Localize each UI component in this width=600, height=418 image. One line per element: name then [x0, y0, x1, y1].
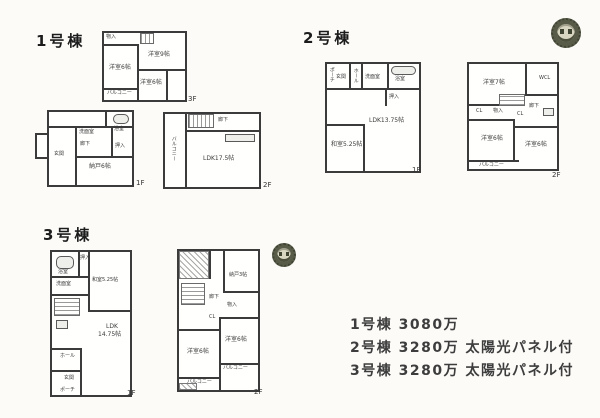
wall: [166, 71, 168, 100]
wall: [75, 156, 132, 158]
stairs-hatch: [54, 298, 80, 316]
floor-tag: 1F: [136, 179, 144, 187]
room-label-storage: 物入: [106, 35, 116, 41]
room-label-storage-room: 納戸6帖: [89, 164, 111, 171]
room-label-balcony: バルコニー: [187, 380, 212, 386]
wall: [137, 69, 185, 71]
compass-stamp-icon: [272, 243, 296, 267]
wall: [104, 44, 137, 46]
room-label-hallway: 廊下: [218, 118, 228, 124]
room-label-washroom: 洗面室: [365, 75, 380, 81]
building3-title: 3号棟: [43, 224, 92, 245]
room-label-closet: CL: [209, 315, 215, 321]
floor-tag: 2F: [263, 181, 271, 189]
room-label-western-room: 洋室6帖: [525, 142, 547, 149]
wall: [513, 126, 557, 128]
toilet-icon: [543, 108, 554, 116]
stairs-hatch: [499, 94, 525, 106]
stairs-hatch: [140, 33, 154, 44]
b2-1f-floorplan: ポーチ 玄関 ホール 洗面室 浴室 押入 LDK13.75帖 和室5.25帖: [325, 62, 421, 173]
wall: [52, 370, 80, 372]
room-label-ldk: LDK17.5帖: [203, 156, 234, 163]
wall: [105, 112, 107, 126]
room-label-closet: CL: [476, 109, 482, 115]
wall: [223, 251, 225, 291]
wall: [349, 64, 351, 88]
room-label-washroom: 洗面室: [56, 282, 71, 288]
wall: [327, 124, 365, 126]
room-label-porch: ポーチ: [60, 388, 75, 394]
room-label-western-room: 洋室6帖: [225, 337, 247, 344]
wall: [52, 348, 80, 350]
room-label-closet: 押入: [80, 256, 90, 262]
stairs-hatch: [188, 114, 214, 128]
room-label-walk-in-closet: WCL: [539, 76, 550, 82]
building2-title: 2号棟: [303, 27, 352, 48]
bathtub-icon: [113, 114, 129, 124]
kitchen-counter-icon: [225, 134, 255, 142]
room-label-bathroom: 浴室: [114, 127, 124, 133]
room-label-bathroom: 浴室: [395, 77, 405, 83]
wall: [80, 348, 82, 395]
room-label-western-room: 洋室9帖: [148, 52, 170, 59]
b1-2f-floorplan: 廊下 バルコニー LDK17.5帖: [163, 112, 261, 189]
bathtub-icon: [56, 256, 74, 269]
wall: [219, 317, 221, 390]
room-label-hallway: 廊下: [209, 295, 219, 301]
wall: [52, 276, 90, 278]
floor-tag: 1F: [127, 389, 135, 397]
wall: [179, 329, 219, 331]
bathtub-icon: [391, 66, 416, 75]
room-label-storage: 物入: [493, 109, 503, 115]
floor-tag: 1F: [412, 166, 420, 174]
floor-tag: 3F: [188, 95, 196, 103]
wall: [111, 126, 113, 156]
price-list: 1号棟 3080万 2号棟 3280万 太陽光パネル付 3号棟 3280万 太陽…: [350, 314, 574, 383]
roof-hatch: [179, 251, 209, 279]
price-line-1: 1号棟 3080万: [350, 314, 574, 337]
price-line-3: 3号棟 3280万 太陽光パネル付: [350, 360, 574, 383]
wall: [363, 124, 365, 171]
price-line-2: 2号棟 3280万 太陽光パネル付: [350, 337, 574, 360]
room-label-balcony: バルコニー: [170, 136, 176, 161]
compass-stamp-icon: [551, 18, 581, 48]
room-label-hallway: 廊下: [529, 104, 539, 110]
room-label-western-room: 洋室6帖: [187, 349, 209, 356]
room-label-entrance: 玄関: [64, 376, 74, 382]
wall: [327, 88, 419, 90]
room-label-ldk-size: 14.75帖: [98, 332, 121, 339]
room-label-washroom: 洗面室: [79, 130, 94, 136]
room-label-bathroom: 浴室: [58, 270, 68, 276]
wall: [525, 64, 527, 94]
b3-2f-floorplan: 納戸3帖 廊下 物入 CL 洋室6帖 洋室6帖 バルコニー バルコニー: [177, 249, 260, 392]
room-label-entrance: 玄関: [54, 152, 64, 158]
room-label-closet: 押入: [115, 144, 125, 150]
b3-1f-floorplan: 浴室 押入 和室5.25帖 洗面室 LDK 14.75帖 ホール 玄関 ポーチ: [50, 250, 132, 397]
floor-tag: 2F: [552, 171, 560, 179]
room-label-balcony: バルコニー: [107, 91, 132, 97]
stamp-mark: [560, 29, 564, 34]
floor-tag: 2F: [254, 388, 262, 396]
room-label-hall: ホール: [352, 68, 358, 83]
b1-3f-floorplan: 物入 洋室9帖 洋室6帖 洋室6帖 バルコニー: [102, 31, 187, 102]
toilet-icon: [56, 320, 68, 329]
room-label-hall: ホール: [60, 354, 75, 360]
room-label-porch: ポーチ: [328, 67, 334, 82]
b1-1f-floorplan: 洗面室 浴室 押入 廊下 玄関 納戸6帖: [47, 110, 134, 187]
wall: [469, 119, 513, 121]
room-label-ldk: LDK13.75帖: [369, 118, 404, 125]
wall: [209, 251, 211, 279]
wall: [88, 310, 130, 312]
wall: [223, 291, 258, 293]
room-label-closet: 押入: [389, 95, 399, 101]
wall: [219, 317, 258, 319]
stamp-mark: [286, 252, 289, 256]
room-label-western-room: 洋室6帖: [481, 136, 503, 143]
wall: [185, 130, 259, 132]
room-label-balcony: バルコニー: [223, 366, 248, 372]
wall: [361, 64, 363, 88]
room-label-western-room: 洋室6帖: [140, 80, 162, 87]
stairs-hatch: [181, 283, 205, 305]
wall: [387, 64, 389, 88]
room-label-storage: 物入: [227, 303, 237, 309]
room-label-entrance: 玄関: [336, 75, 346, 81]
wall: [137, 44, 139, 100]
porch-outline: [35, 133, 49, 159]
room-label-western-room: 洋室6帖: [109, 65, 131, 72]
room-label-storage-room: 納戸3帖: [229, 273, 247, 279]
wall: [185, 114, 187, 187]
room-label-western-room: 洋室7帖: [483, 80, 505, 87]
b2-2f-floorplan: 洋室7帖 WCL CL 物入 廊下 CL 洋室6帖 洋室6帖 バルコニー: [467, 62, 559, 171]
building1-title: 1号棟: [36, 30, 85, 51]
room-label-japanese-room: 和室5.25帖: [92, 278, 118, 284]
room-label-closet: CL: [517, 112, 523, 118]
floorplan-sheet: 1号棟 物入 洋室9帖 洋室6帖 洋室6帖 バルコニー 3F 洗面室 浴室 押入…: [0, 0, 600, 418]
stamp-mark: [568, 29, 572, 34]
wall: [385, 90, 387, 106]
room-label-balcony: バルコニー: [479, 163, 504, 169]
room-label-ldk: LDK: [106, 324, 118, 331]
room-label-hallway: 廊下: [80, 142, 90, 148]
wall: [52, 294, 88, 296]
wall: [525, 94, 557, 96]
room-label-japanese-room: 和室5.25帖: [331, 142, 362, 149]
stamp-mark: [279, 252, 282, 256]
